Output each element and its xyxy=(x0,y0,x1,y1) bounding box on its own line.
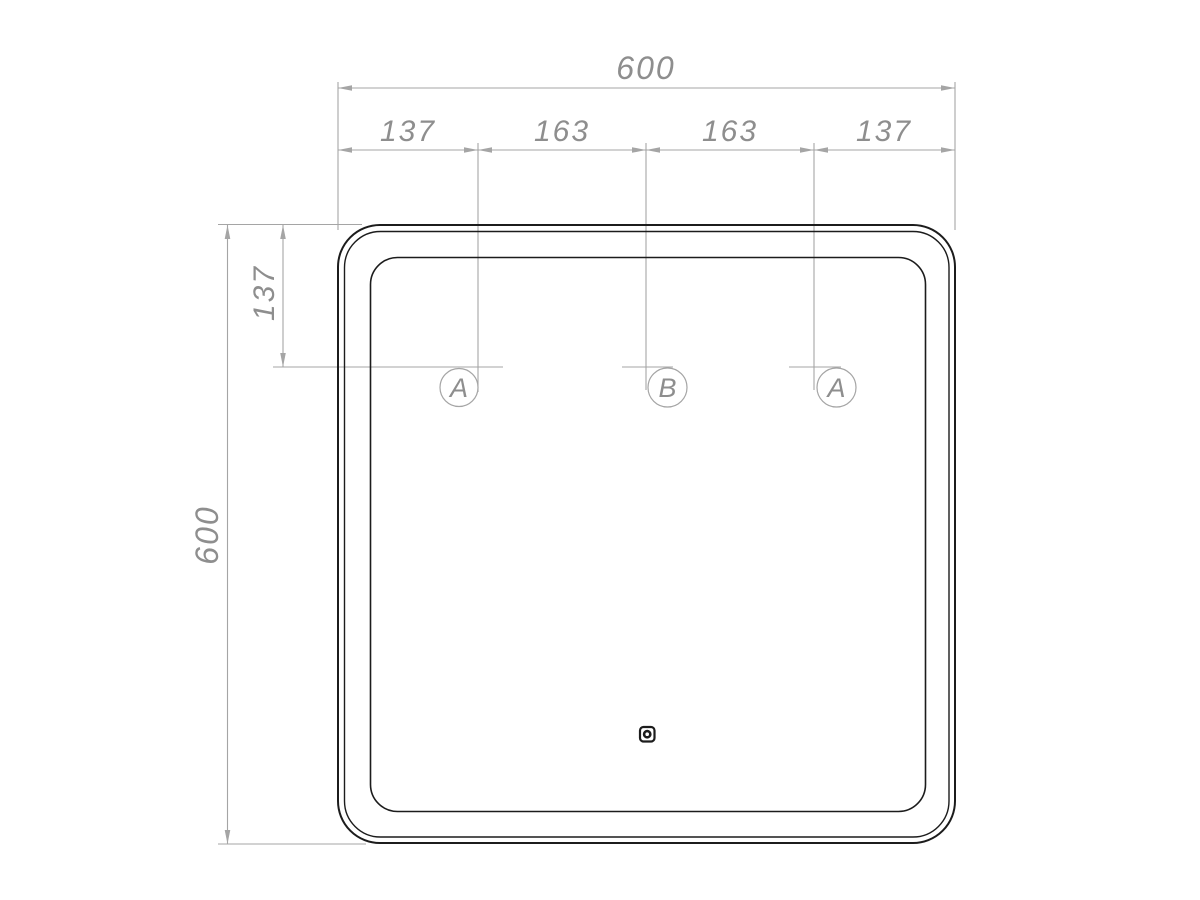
mirror-technical-drawing: 600 137 163 163 137 600 137 A B A xyxy=(0,0,1200,900)
mount-label-a1: A xyxy=(448,373,468,403)
arrow-left-icon xyxy=(338,147,352,153)
label-total-width: 600 xyxy=(616,50,675,86)
arrow-left-icon xyxy=(814,147,828,153)
label-segment-2: 163 xyxy=(534,115,590,148)
label-segment-3: 163 xyxy=(702,115,758,148)
arrow-right-icon xyxy=(464,147,478,153)
mount-label-b: B xyxy=(658,373,676,403)
arrow-left-icon xyxy=(646,147,660,153)
arrow-down-icon xyxy=(225,830,231,844)
mirror-inner-frame-outline xyxy=(345,232,950,838)
touch-sensor-icon xyxy=(640,727,655,742)
led-strip-outline xyxy=(371,258,926,812)
label-total-height: 600 xyxy=(189,505,225,564)
arrow-left-icon xyxy=(478,147,492,153)
label-segment-4: 137 xyxy=(856,115,912,148)
label-segment-1: 137 xyxy=(380,115,436,148)
drawing-canvas: 600 137 163 163 137 600 137 A B A xyxy=(0,0,1200,900)
touch-sensor-frame xyxy=(640,727,655,742)
arrow-right-icon xyxy=(632,147,646,153)
arrow-down-icon xyxy=(280,353,286,367)
touch-sensor-dot xyxy=(644,731,650,737)
mount-label-a2: A xyxy=(825,373,845,403)
arrow-up-icon xyxy=(225,225,231,239)
dimension-arrows xyxy=(225,85,955,844)
arrow-up-icon xyxy=(280,225,286,239)
arrow-right-icon xyxy=(941,85,955,91)
arrow-right-icon xyxy=(800,147,814,153)
label-top-offset: 137 xyxy=(248,265,281,321)
arrow-right-icon xyxy=(941,147,955,153)
dimension-labels: 600 137 163 163 137 600 137 A B A xyxy=(189,50,912,565)
mounting-point-circles xyxy=(440,368,856,407)
dimension-lines xyxy=(218,82,955,844)
arrow-left-icon xyxy=(338,85,352,91)
